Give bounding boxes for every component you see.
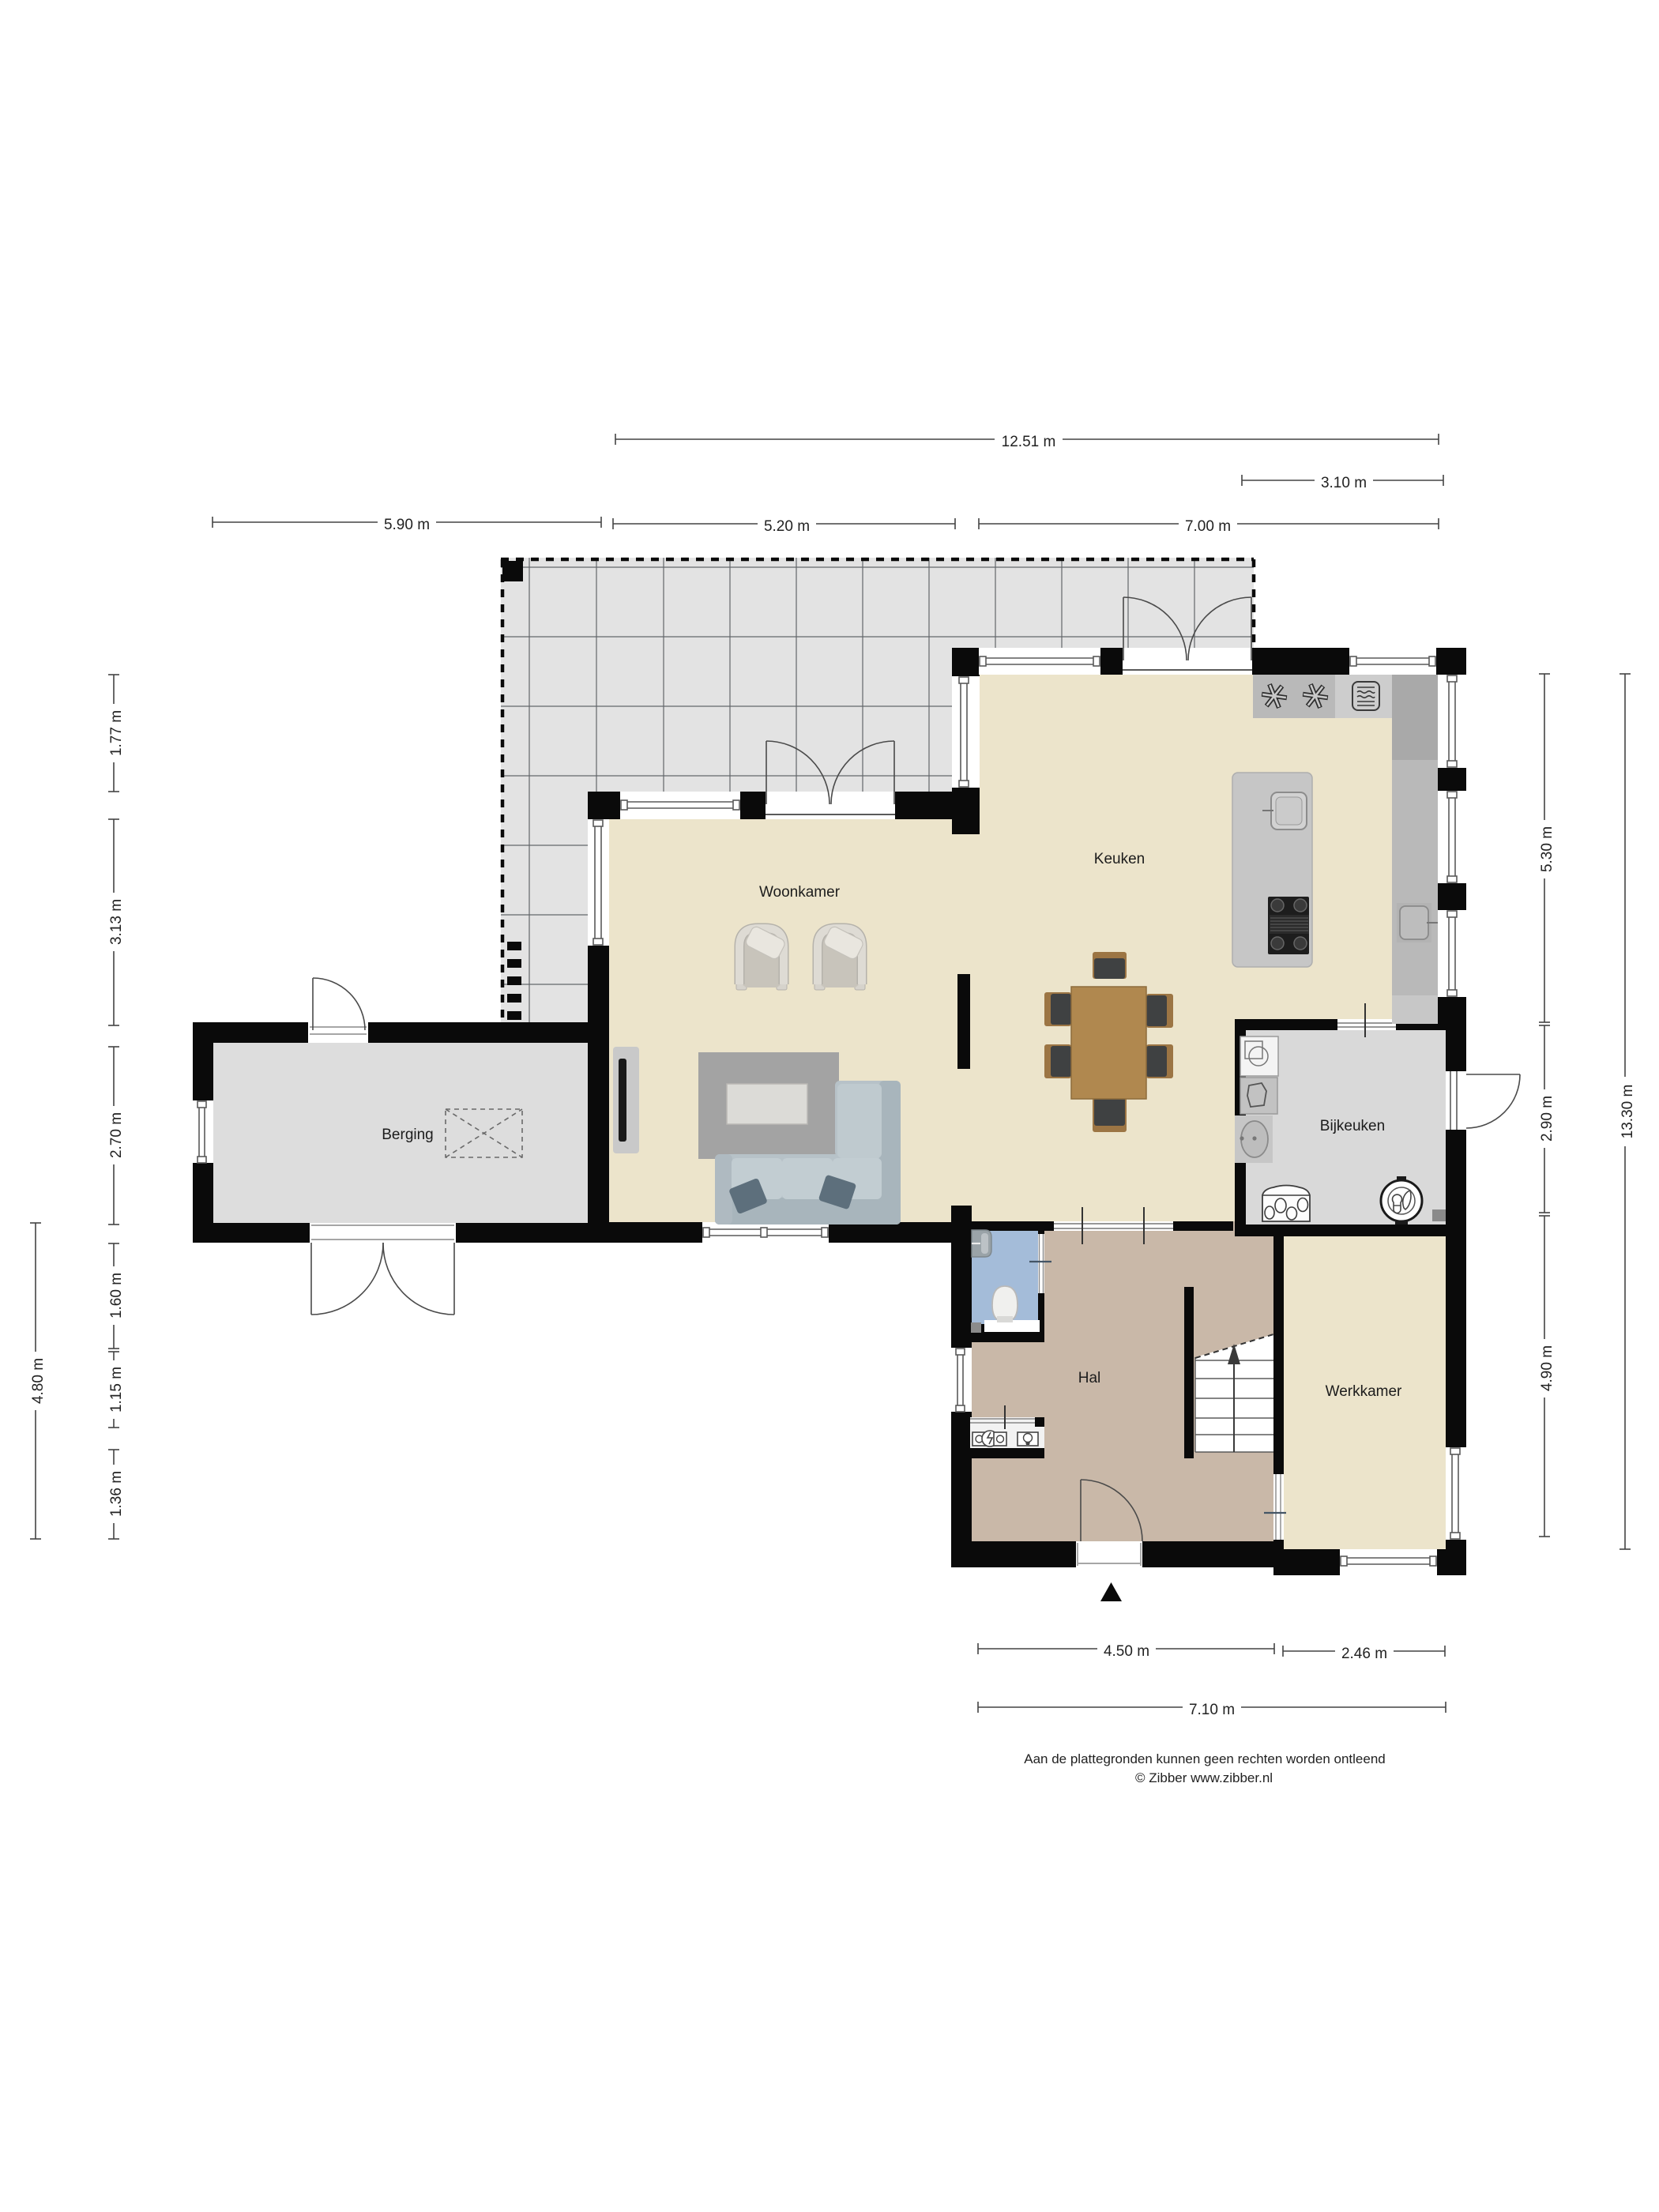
svg-text:© Zibber www.zibber.nl: © Zibber www.zibber.nl bbox=[1135, 1770, 1273, 1785]
svg-text:Berging: Berging bbox=[382, 1127, 434, 1143]
svg-text:7.00 m: 7.00 m bbox=[1185, 518, 1231, 535]
svg-text:Aan de plattegronden kunnen ge: Aan de plattegronden kunnen geen rechten… bbox=[1024, 1751, 1385, 1766]
svg-text:5.30 m: 5.30 m bbox=[1539, 826, 1556, 872]
svg-text:5.90 m: 5.90 m bbox=[384, 517, 430, 533]
svg-text:Keuken: Keuken bbox=[1094, 851, 1145, 867]
svg-text:3.10 m: 3.10 m bbox=[1321, 475, 1367, 491]
svg-text:12.51 m: 12.51 m bbox=[1002, 434, 1056, 450]
svg-text:4.90 m: 4.90 m bbox=[1539, 1345, 1556, 1391]
svg-text:7.10 m: 7.10 m bbox=[1189, 1702, 1235, 1718]
svg-text:4.80 m: 4.80 m bbox=[30, 1358, 47, 1404]
svg-text:4.50 m: 4.50 m bbox=[1104, 1643, 1149, 1660]
svg-text:1.15 m: 1.15 m bbox=[108, 1367, 125, 1413]
svg-text:Werkkamer: Werkkamer bbox=[1326, 1383, 1402, 1400]
svg-text:5.20 m: 5.20 m bbox=[764, 518, 810, 535]
svg-text:1.60 m: 1.60 m bbox=[108, 1273, 125, 1319]
svg-text:Woonkamer: Woonkamer bbox=[759, 884, 841, 901]
svg-text:1.36 m: 1.36 m bbox=[108, 1471, 125, 1517]
svg-text:2.70 m: 2.70 m bbox=[108, 1112, 125, 1158]
svg-text:2.46 m: 2.46 m bbox=[1341, 1646, 1387, 1662]
svg-text:Bijkeuken: Bijkeuken bbox=[1320, 1118, 1385, 1134]
svg-text:2.90 m: 2.90 m bbox=[1539, 1096, 1556, 1142]
svg-text:Hal: Hal bbox=[1078, 1370, 1101, 1386]
svg-text:1.77 m: 1.77 m bbox=[108, 710, 125, 756]
svg-text:3.13 m: 3.13 m bbox=[108, 899, 125, 945]
svg-text:13.30 m: 13.30 m bbox=[1619, 1085, 1636, 1139]
